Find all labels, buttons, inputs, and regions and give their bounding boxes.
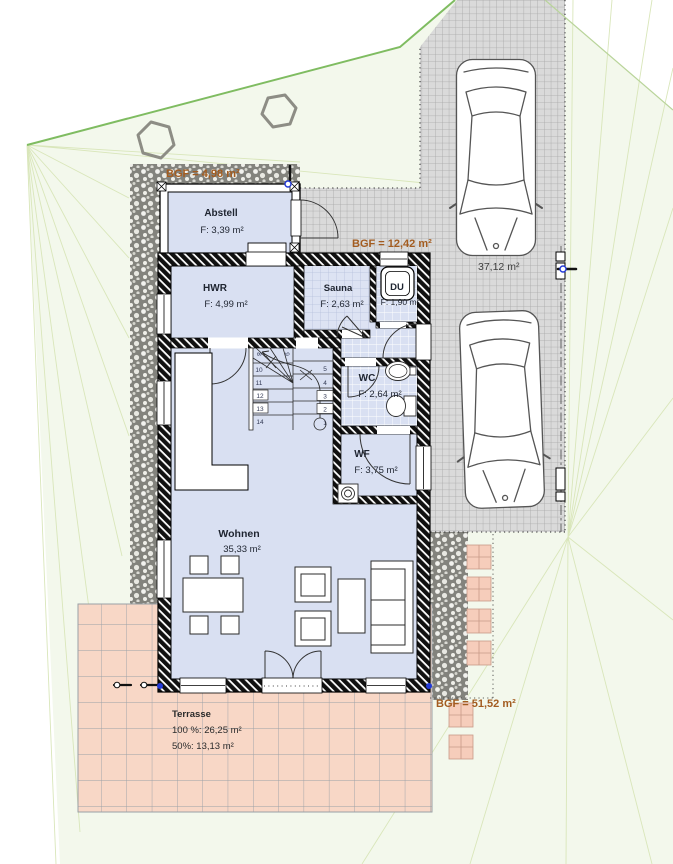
room-label-abstell: Abstell xyxy=(204,208,238,219)
window xyxy=(157,381,171,425)
coffee-table xyxy=(338,579,365,633)
stair-step-number: 3 xyxy=(323,394,327,401)
sauna-floor xyxy=(304,266,370,330)
room-label-hwr: HWR xyxy=(203,283,228,294)
room-area-sauna: F: 2,63 m² xyxy=(320,299,363,310)
room-label-wf: WF xyxy=(354,449,370,460)
floor-plan-drawing: 10 11 12 13 14 5 4 3 2 1 8 9 Abstell F: … xyxy=(0,0,673,864)
floor-plan-canvas: 10 11 12 13 14 5 4 3 2 1 8 9 Abstell F: … xyxy=(0,0,673,864)
stair-step-number: 2 xyxy=(323,407,327,414)
stair-step-number: 11 xyxy=(256,380,263,387)
armchair xyxy=(295,611,331,646)
armchair xyxy=(295,567,331,602)
annex-passage-opening xyxy=(246,252,286,266)
room-label-du: DU xyxy=(390,282,404,293)
bgf-total-label: BGF = 51,52 m² xyxy=(436,698,516,710)
stair-step-number: 12 xyxy=(256,393,264,400)
window xyxy=(180,678,226,693)
room-area-wohnen: 35,33 m² xyxy=(223,544,261,555)
terrace-area-half: 50%: 13,13 m² xyxy=(172,741,234,752)
bgf-main-label: BGF = 12,42 m² xyxy=(352,238,432,250)
chair xyxy=(221,616,239,634)
gravel-strip-right xyxy=(428,532,468,700)
window xyxy=(380,252,408,266)
room-area-hwr: F: 4,99 m² xyxy=(204,299,247,310)
dining-table xyxy=(183,578,243,612)
bgf-annex-label: BGF = 4,98 m² xyxy=(166,168,240,180)
room-area-du: F: 1,90 m² xyxy=(381,297,420,307)
stair-step-number: 10 xyxy=(255,367,263,374)
room-area-abstell: F: 3,39 m² xyxy=(200,225,243,236)
terrace-area-full: 100 %: 26,25 m² xyxy=(172,725,242,736)
chair xyxy=(190,556,208,574)
room-label-wc: WC xyxy=(359,373,376,384)
driveway-area-label: 37,12 m² xyxy=(478,261,520,273)
house: 10 11 12 13 14 5 4 3 2 1 8 9 Abstell F: … xyxy=(157,182,431,693)
terrace-label: Terrasse xyxy=(172,709,211,720)
wf-shaft xyxy=(338,484,358,503)
room-label-wohnen: Wohnen xyxy=(218,528,259,540)
room-area-wf: F: 3,75 m² xyxy=(354,465,397,476)
room-area-wc: F: 2,64 m² xyxy=(358,389,401,400)
stair-step-number: 14 xyxy=(256,419,264,426)
window xyxy=(157,294,171,334)
entry-door-opening xyxy=(416,324,431,360)
chair xyxy=(190,616,208,634)
chair xyxy=(221,556,239,574)
stair-step-number: 9 xyxy=(283,352,290,356)
stair-step-number: 1 xyxy=(323,420,327,427)
car-top-view xyxy=(453,310,552,509)
stair-step-number: 13 xyxy=(256,406,264,413)
window xyxy=(416,446,431,490)
annex-bench xyxy=(248,243,286,253)
window xyxy=(366,678,406,693)
room-label-sauna: Sauna xyxy=(324,283,353,294)
stair-step-number: 5 xyxy=(323,366,327,373)
stair-step-number: 8 xyxy=(255,352,262,356)
annex-door-opening xyxy=(291,200,301,236)
terrace-door-opening xyxy=(262,678,322,693)
window xyxy=(157,540,171,598)
stair-step-number: 4 xyxy=(323,380,327,387)
car-top-view xyxy=(450,60,542,256)
sofa xyxy=(371,561,413,653)
